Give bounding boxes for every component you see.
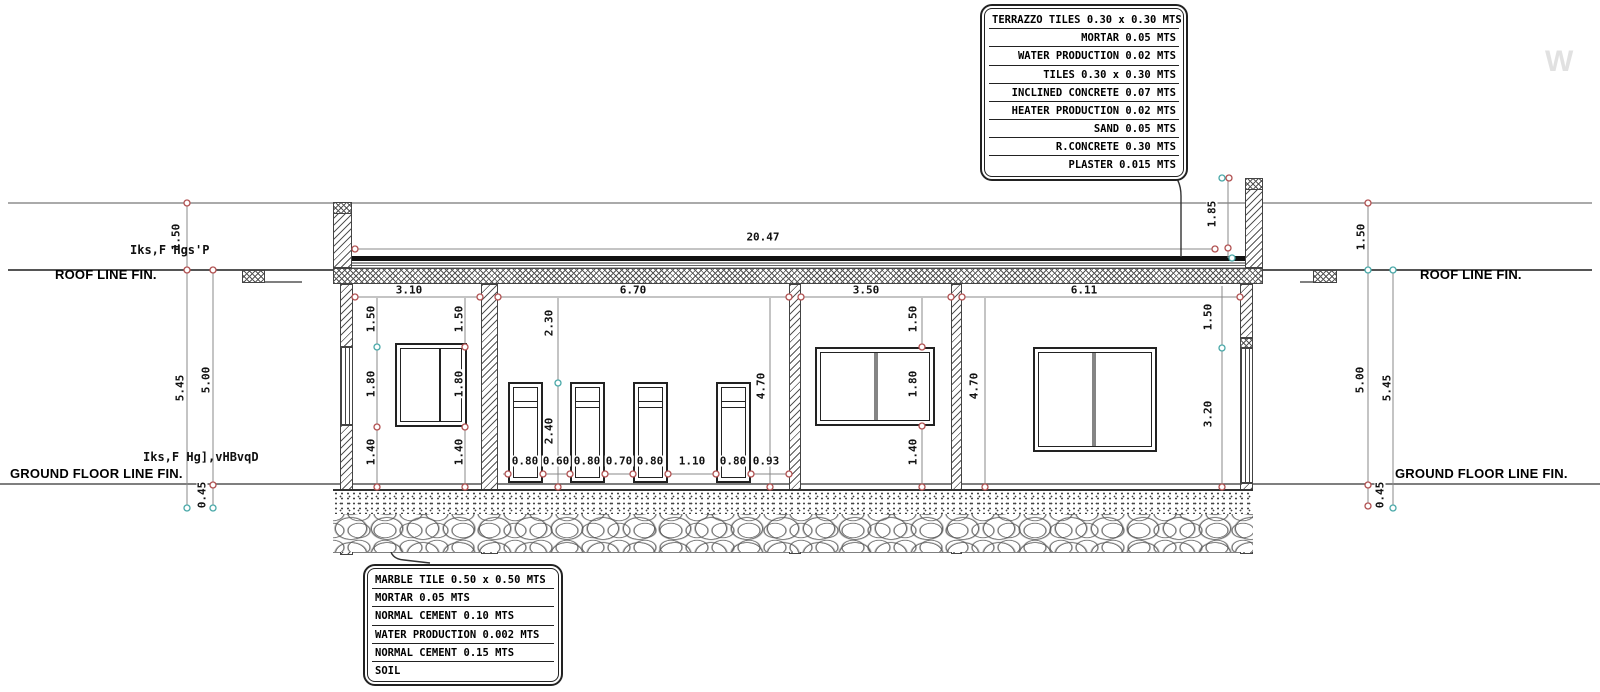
dim-door-row-4: 0.70 — [605, 456, 634, 467]
dim-room1-140-l: 1.40 — [366, 438, 377, 467]
dim-room1-140-r: 1.40 — [454, 438, 465, 467]
parapet-right — [1245, 178, 1263, 268]
roof-layer-row: MORTAR 0.05 MTS — [989, 29, 1179, 47]
floor-layer-row: WATER PRODUCTION 0.002 MTS — [372, 626, 554, 644]
roof-layer-row: TERRAZZO TILES 0.30 x 0.30 MTS — [989, 11, 1179, 29]
dim-bay2: 6.70 — [619, 285, 648, 296]
wall-right-window-section — [1240, 348, 1253, 483]
dim-bay4: 6.11 — [1070, 285, 1099, 296]
dim-room3-140: 1.40 — [908, 438, 919, 467]
door-transom — [638, 401, 663, 408]
floor-construction-callout: MARBLE TILE 0.50 x 0.50 MTS MORTAR 0.05 … — [363, 564, 563, 686]
dim-right-150: 1.50 — [1356, 223, 1367, 252]
roof-note-text: Iks,F Hgs'P — [130, 243, 209, 257]
wall-right-upper — [1240, 284, 1253, 338]
dim-overall-width: 20.47 — [745, 232, 780, 243]
door-unit-4 — [716, 382, 751, 483]
floor-bed-layer — [333, 489, 1253, 514]
dim-bay1: 3.10 — [395, 285, 424, 296]
dim-rightwall-150: 1.50 — [1203, 303, 1214, 332]
dim-right-545: 5.45 — [1382, 374, 1393, 403]
dim-door-row-5: 0.80 — [636, 456, 665, 467]
roof-layer-row: TILES 0.30 x 0.30 MTS — [989, 66, 1179, 84]
ground-line-label-left: GROUND FLOOR LINE FIN. — [10, 466, 183, 481]
dim-door-row-1: 0.80 — [511, 456, 540, 467]
roof-layer-row: HEATER PRODUCTION 0.02 MTS — [989, 102, 1179, 120]
dim-rightwall-320: 3.20 — [1203, 400, 1214, 429]
dim-room3-150: 1.50 — [908, 305, 919, 334]
wall-left-window-section — [340, 347, 353, 425]
dim-door-row-3: 0.80 — [573, 456, 602, 467]
floor-layer-row: MORTAR 0.05 MTS — [372, 589, 554, 607]
parapet-right-cap — [1245, 178, 1263, 190]
window-mullion — [439, 349, 441, 421]
floor-rubble-layer — [333, 514, 1253, 552]
dim-room1-150-l: 1.50 — [366, 305, 377, 334]
dim-room4-470: 4.70 — [969, 372, 980, 401]
roof-layer-row: SAND 0.05 MTS — [989, 120, 1179, 138]
dim-door-row-6: 1.10 — [678, 456, 707, 467]
ground-note-text: Iks,F Hg],vHBvqD — [143, 450, 259, 464]
wall-left-upper — [340, 284, 353, 347]
wall-right-lintel — [1240, 338, 1253, 348]
roof-construction-callout: TERRAZZO TILES 0.30 x 0.30 MTS MORTAR 0.… — [980, 4, 1188, 181]
floor-layer-row: NORMAL CEMENT 0.10 MTS — [372, 607, 554, 625]
roof-layer-row: R.CONCRETE 0.30 MTS — [989, 138, 1179, 156]
dim-door-row-8: 0.93 — [752, 456, 781, 467]
ledge-block-left — [242, 270, 265, 283]
roof-line-label-right: ROOF LINE FIN. — [1420, 267, 1522, 282]
window-room4 — [1033, 347, 1157, 452]
roof-callout-inner: TERRAZZO TILES 0.30 x 0.30 MTS MORTAR 0.… — [984, 8, 1184, 177]
window-mullion — [874, 353, 878, 420]
ground-line-label-right: GROUND FLOOR LINE FIN. — [1395, 466, 1568, 481]
roof-layer-row: WATER PRODUCTION 0.02 MTS — [989, 47, 1179, 65]
door-unit-3 — [633, 382, 668, 483]
parapet-left-cap — [333, 202, 352, 214]
dim-room1-180-r: 1.80 — [454, 370, 465, 399]
dim-left-545: 5.45 — [175, 374, 186, 403]
dim-left-045: 0.45 — [197, 481, 208, 510]
door-unit-2 — [570, 382, 605, 483]
roof-layer-row: INCLINED CONCRETE 0.07 MTS — [989, 84, 1179, 102]
dim-room3-180: 1.80 — [908, 370, 919, 399]
dim-left-500: 5.00 — [201, 366, 212, 395]
dim-door-row-2: 0.60 — [542, 456, 571, 467]
section-drawing: 20.47 3.10 6.70 3.50 6.11 0.80 0.60 0.80… — [0, 0, 1600, 692]
dim-room1-180-l: 1.80 — [366, 370, 377, 399]
roof-slab — [333, 268, 1263, 284]
floor-layer-row: SOIL — [372, 662, 554, 679]
floor-layer-row: MARBLE TILE 0.50 x 0.50 MTS — [372, 571, 554, 589]
dim-bay3: 3.50 — [852, 285, 881, 296]
roof-line-label-left: ROOF LINE FIN. — [55, 267, 157, 282]
dim-room2-470: 4.70 — [756, 372, 767, 401]
dim-parapet-185: 1.85 — [1207, 200, 1218, 229]
dim-room2-230: 2.30 — [544, 309, 555, 338]
dim-right-045: 0.45 — [1375, 481, 1386, 510]
dim-door-row-7: 0.80 — [719, 456, 748, 467]
dim-room2-240: 2.40 — [544, 417, 555, 446]
ledge-block-right — [1313, 270, 1337, 283]
door-unit-1 — [508, 382, 543, 483]
roof-layer-row: PLASTER 0.015 MTS — [989, 156, 1179, 173]
dim-room1-150-r: 1.50 — [454, 305, 465, 334]
door-transom — [513, 401, 538, 408]
floor-layer-row: NORMAL CEMENT 0.15 MTS — [372, 644, 554, 662]
dim-right-500: 5.00 — [1355, 366, 1366, 395]
door-transom — [721, 401, 746, 408]
window-mullion — [1092, 353, 1096, 446]
door-transom — [575, 401, 600, 408]
floor-callout-inner: MARBLE TILE 0.50 x 0.50 MTS MORTAR 0.05 … — [367, 568, 559, 682]
